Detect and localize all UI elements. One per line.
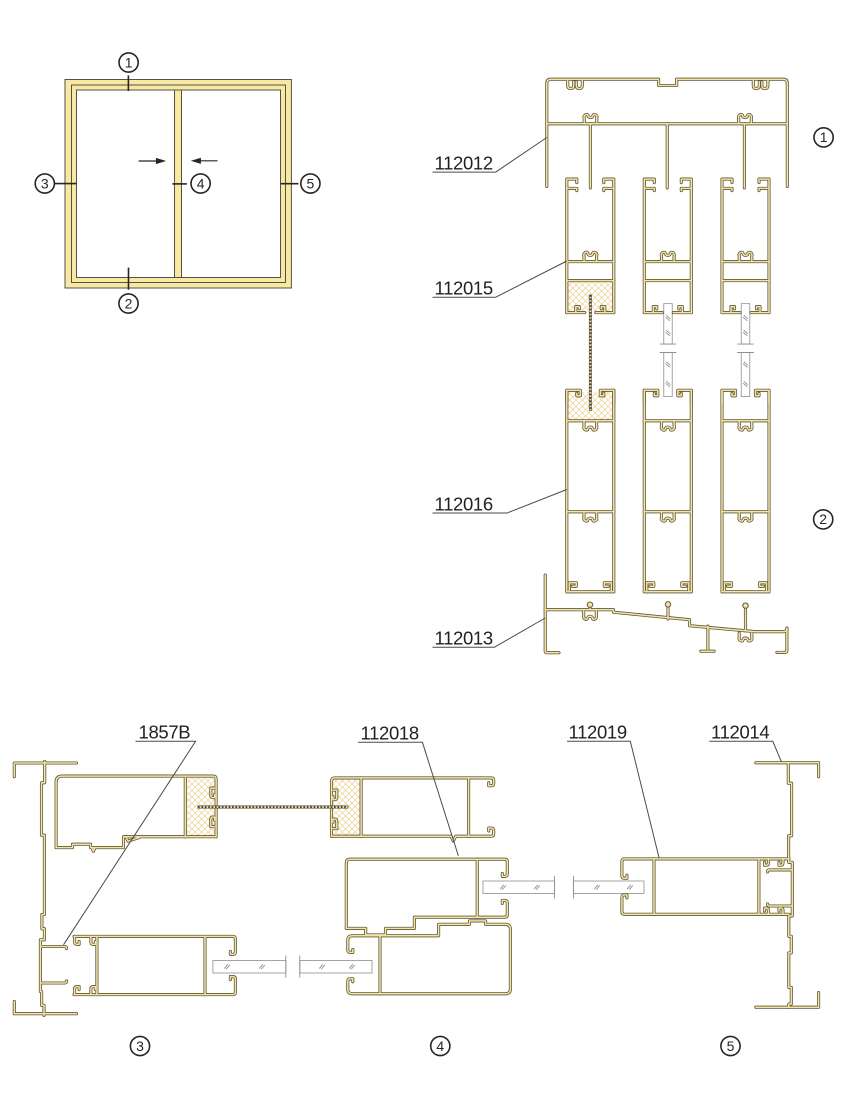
svg-text:4: 4 xyxy=(197,175,205,191)
svg-text:3: 3 xyxy=(136,1038,144,1054)
svg-text:112018: 112018 xyxy=(361,723,419,744)
svg-text:1: 1 xyxy=(125,54,133,70)
svg-text:1: 1 xyxy=(820,129,828,145)
svg-text:2: 2 xyxy=(125,295,133,311)
svg-text:5: 5 xyxy=(307,175,315,191)
svg-text:112015: 112015 xyxy=(435,278,493,299)
svg-text:5: 5 xyxy=(727,1038,735,1054)
svg-text:112019: 112019 xyxy=(569,722,627,743)
svg-text:1857B: 1857B xyxy=(139,722,191,743)
svg-text:112014: 112014 xyxy=(711,722,769,743)
svg-text:112013: 112013 xyxy=(435,628,493,649)
svg-text:2: 2 xyxy=(819,511,827,527)
svg-text:112012: 112012 xyxy=(435,153,493,174)
svg-text:112016: 112016 xyxy=(435,494,493,515)
svg-text:3: 3 xyxy=(41,175,49,191)
svg-text:4: 4 xyxy=(436,1038,444,1054)
